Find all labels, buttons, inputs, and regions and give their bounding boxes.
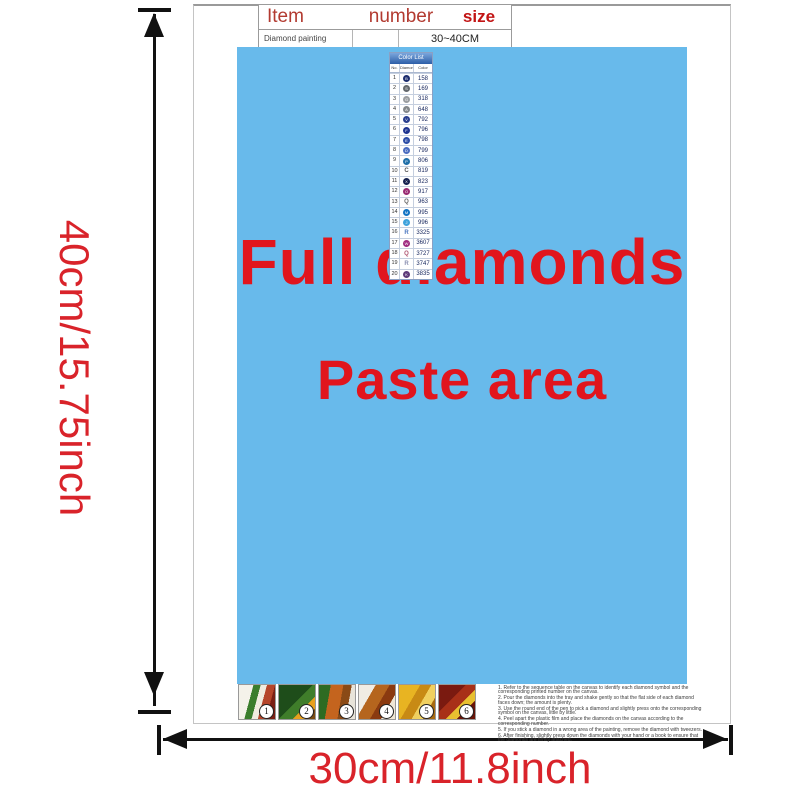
- color-row: 15J996: [390, 217, 432, 227]
- color-code: 823: [414, 179, 432, 185]
- diamond-symbol-icon: P: [400, 156, 414, 165]
- color-row-number: 7: [390, 136, 400, 145]
- diamond-symbol-icon: O: [400, 187, 414, 196]
- diamond-symbol-icon: M: [400, 208, 414, 217]
- color-row: 7E798: [390, 135, 432, 145]
- color-row: 8D799: [390, 145, 432, 155]
- arrow-shaft-vertical: [153, 14, 156, 706]
- item-table-row: Diamond painting 30~40CM: [259, 30, 511, 47]
- item-size-cell: 30~40CM: [399, 33, 511, 45]
- diamond-symbol-icon: F: [400, 125, 414, 134]
- color-code: 3727: [414, 251, 432, 257]
- diamond-symbol-icon: A: [400, 105, 414, 114]
- color-row: 12O917: [390, 186, 432, 196]
- diamond-symbol-icon: G: [400, 95, 414, 104]
- color-row-number: 20: [390, 270, 400, 279]
- color-code: 3607: [414, 240, 432, 246]
- instruction-text-block: 1. Refer to the sequence table on the ca…: [498, 686, 704, 744]
- color-list-left: Color List No. Diamond Color 1B1582S1693…: [389, 52, 433, 280]
- color-row: 14M995: [390, 207, 432, 217]
- paste-area-title-line2: Paste area: [237, 347, 687, 412]
- color-code: 648: [414, 107, 432, 113]
- color-row: 18Q3727: [390, 248, 432, 258]
- paste-area: Full diamonds Paste area: [237, 47, 687, 684]
- color-row-number: 17: [390, 239, 400, 248]
- color-row-number: 12: [390, 187, 400, 196]
- diamond-symbol-icon: R: [400, 259, 414, 268]
- diamond-symbol-icon: E: [400, 136, 414, 145]
- width-dimension-label: 30cm/11.8inch: [170, 744, 730, 794]
- color-list-rows: 1B1582S1693G3184A6485V7926F7967E7988D799…: [390, 73, 432, 279]
- color-code: 798: [414, 137, 432, 143]
- step-number-badge: 3: [339, 704, 354, 719]
- color-row-number: 11: [390, 177, 400, 186]
- color-row: 4A648: [390, 104, 432, 114]
- diamond-symbol-icon: K: [400, 270, 414, 279]
- color-code: 3325: [414, 230, 432, 236]
- color-code: 917: [414, 189, 432, 195]
- color-row-number: 6: [390, 125, 400, 134]
- color-row-number: 14: [390, 208, 400, 217]
- color-row: 6F796: [390, 124, 432, 134]
- color-list-col-diamond: Diamond: [400, 64, 414, 72]
- color-row: 17W3607: [390, 238, 432, 248]
- instruction-line: 1. Refer to the sequence table on the ca…: [498, 686, 704, 695]
- step-photos-strip: 123456: [238, 684, 476, 720]
- instruction-line: 3. Use the round end of the pen to pick …: [498, 707, 704, 716]
- color-row: 1B158: [390, 73, 432, 83]
- color-row: 3G318: [390, 94, 432, 104]
- canvas-sheet: Item number size Diamond painting 30~40C…: [193, 4, 731, 724]
- diamond-symbol-icon: W: [400, 239, 414, 248]
- color-row-number: 19: [390, 259, 400, 268]
- product-infographic: 40cm/15.75inch 30cm/11.8inch Item number…: [0, 0, 800, 800]
- item-name-cell: Diamond painting: [259, 30, 353, 47]
- color-list-title: Color List: [390, 53, 432, 64]
- step-photo-3: 3: [318, 684, 356, 720]
- color-row: 10C819: [390, 166, 432, 176]
- color-row: 9P806: [390, 155, 432, 165]
- color-code: 819: [414, 168, 432, 174]
- color-row: 11X823: [390, 176, 432, 186]
- step-number-badge: 4: [379, 704, 394, 719]
- color-row-number: 18: [390, 249, 400, 258]
- color-list-column-header: No. Diamond Color: [390, 64, 432, 73]
- color-code: 806: [414, 158, 432, 164]
- step-number-badge: 5: [419, 704, 434, 719]
- paste-area-title-line1: Full diamonds: [237, 225, 687, 299]
- item-table-col-number: number: [355, 6, 447, 28]
- color-row-number: 4: [390, 105, 400, 114]
- arrow-endcap-bottom: [138, 710, 171, 714]
- color-list-col-color: Color: [414, 64, 432, 72]
- instruction-line: 6. After finishing, slightly press down …: [498, 734, 704, 743]
- color-row-number: 13: [390, 198, 400, 207]
- diamond-symbol-icon: R: [400, 228, 414, 237]
- color-row-number: 16: [390, 228, 400, 237]
- step-photo-1: 1: [238, 684, 276, 720]
- step-photo-5: 5: [398, 684, 436, 720]
- color-row-number: 2: [390, 84, 400, 93]
- diamond-symbol-icon: C: [400, 167, 414, 176]
- item-table-col-item: Item: [259, 6, 355, 28]
- color-row-number: 3: [390, 95, 400, 104]
- color-row-number: 9: [390, 156, 400, 165]
- color-row-number: 5: [390, 115, 400, 124]
- color-code: 3835: [414, 271, 432, 277]
- height-dimension-label: 40cm/15.75inch: [50, 220, 98, 517]
- color-row: 2S169: [390, 83, 432, 93]
- color-row-number: 8: [390, 146, 400, 155]
- color-code: 799: [414, 148, 432, 154]
- diamond-symbol-icon: Q: [400, 198, 414, 207]
- arrow-endcap-top: [138, 8, 171, 12]
- instruction-line: 5. If you stick a diamond in a wrong are…: [498, 728, 704, 732]
- diamond-symbol-icon: D: [400, 146, 414, 155]
- diamond-symbol-icon: S: [400, 84, 414, 93]
- item-table-header: Item number size: [259, 5, 511, 30]
- color-code: 995: [414, 210, 432, 216]
- color-code: 996: [414, 220, 432, 226]
- color-code: 796: [414, 127, 432, 133]
- diamond-symbol-icon: V: [400, 115, 414, 124]
- color-code: 169: [414, 86, 432, 92]
- instruction-line: 2. Pour the diamonds into the tray and s…: [498, 696, 704, 705]
- arrow-head-down-icon: [144, 672, 164, 696]
- diamond-symbol-icon: Q: [400, 249, 414, 258]
- color-row: 16R3325: [390, 227, 432, 237]
- item-number-table: Item number size Diamond painting 30~40C…: [258, 4, 512, 48]
- step-photo-4: 4: [358, 684, 396, 720]
- color-row: 13Q963: [390, 197, 432, 207]
- color-row-number: 10: [390, 167, 400, 176]
- color-code: 963: [414, 199, 432, 205]
- step-number-badge: 1: [259, 704, 274, 719]
- diamond-symbol-icon: X: [400, 177, 414, 186]
- item-table-col-size: size: [447, 7, 511, 27]
- diamond-symbol-icon: J: [400, 218, 414, 227]
- color-row-number: 1: [390, 74, 400, 83]
- color-row: 5V792: [390, 114, 432, 124]
- arrow-endcap-left: [157, 725, 161, 755]
- color-row: 20K3835: [390, 269, 432, 279]
- color-code: 3747: [414, 261, 432, 267]
- color-row-number: 15: [390, 218, 400, 227]
- color-code: 792: [414, 117, 432, 123]
- item-number-cell: [353, 30, 399, 47]
- color-list-col-no: No.: [390, 64, 400, 72]
- step-number-badge: 2: [299, 704, 314, 719]
- instruction-line: 4. Peel apart the plastic film and place…: [498, 717, 704, 726]
- color-row: 19R3747: [390, 258, 432, 268]
- diamond-symbol-icon: B: [400, 74, 414, 83]
- step-photo-6: 6: [438, 684, 476, 720]
- color-code: 158: [414, 76, 432, 82]
- step-number-badge: 6: [459, 704, 474, 719]
- color-code: 318: [414, 96, 432, 102]
- step-photo-2: 2: [278, 684, 316, 720]
